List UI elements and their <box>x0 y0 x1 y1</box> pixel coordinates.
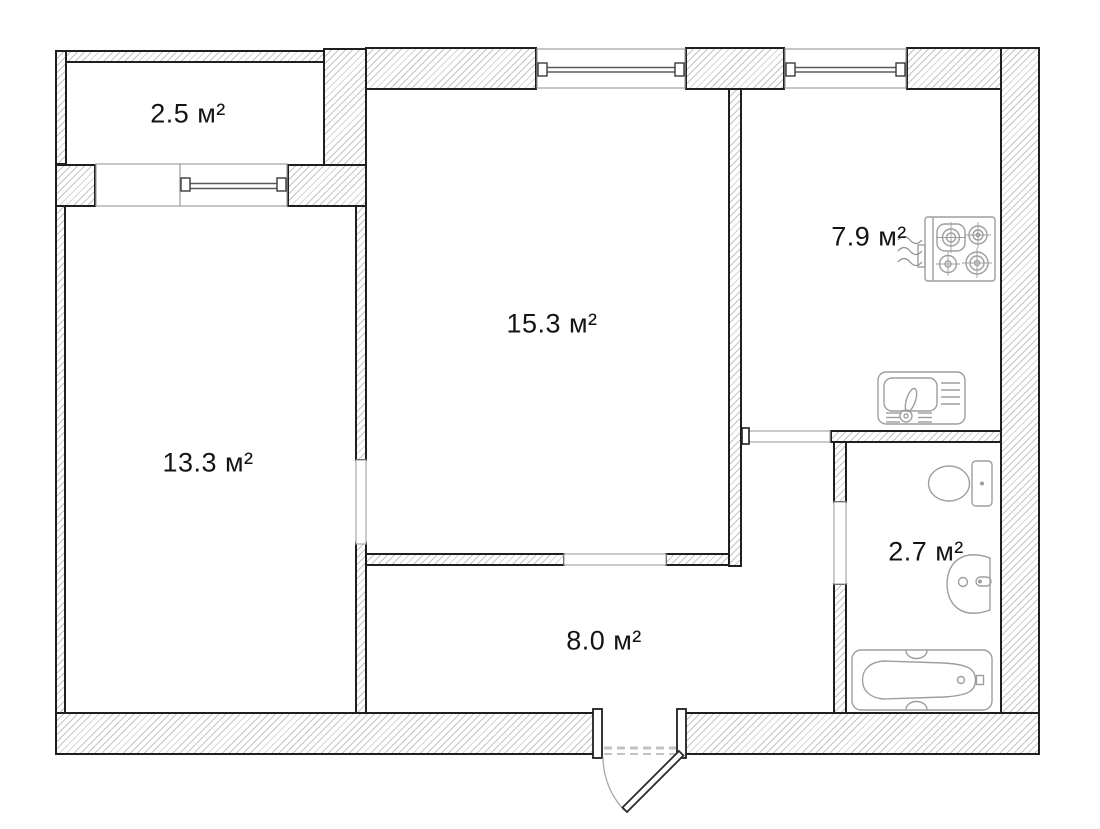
kitchen-sink-icon <box>878 372 965 424</box>
toilet-icon <box>929 461 993 506</box>
room-label-room-center: 15.3 м² <box>506 309 597 340</box>
floorplan: 2.5 м² 13.3 м² 15.3 м² 7.9 м² 2.7 м² 8.0… <box>0 0 1100 829</box>
window-icon <box>785 49 906 88</box>
entrance-door-icon <box>593 709 686 812</box>
kitchen-door-opening <box>742 428 830 444</box>
room-label-room-left: 13.3 м² <box>162 448 253 479</box>
window-icon <box>180 164 287 206</box>
gas-stove-icon <box>898 217 995 281</box>
room-label-kitchen: 7.9 м² <box>831 222 907 253</box>
door-jamb-left <box>593 709 602 758</box>
balcony-door-opening <box>96 164 180 206</box>
window-icon <box>537 49 685 88</box>
bathtub-icon <box>852 650 992 710</box>
room-left-door-opening <box>356 460 366 544</box>
bathroom-door-opening <box>834 502 846 584</box>
door-leaf <box>623 751 684 812</box>
hallway-opening <box>564 554 666 565</box>
room-label-hallway: 8.0 м² <box>566 626 642 657</box>
room-label-balcony: 2.5 м² <box>150 99 226 130</box>
room-label-bathroom: 2.7 м² <box>888 537 964 568</box>
door-swing-arc <box>603 757 624 810</box>
